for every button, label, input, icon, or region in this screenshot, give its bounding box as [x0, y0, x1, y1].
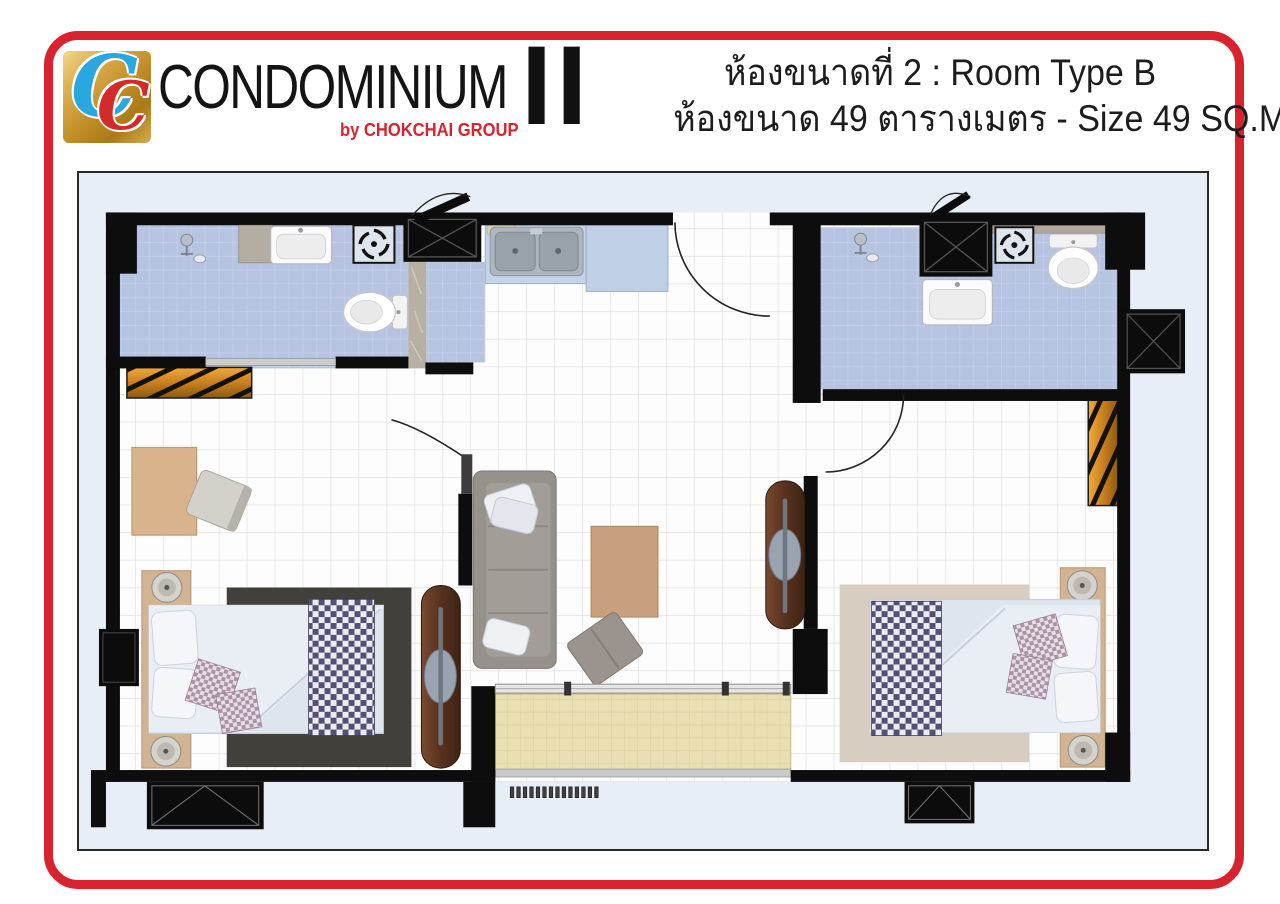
sofa: [473, 471, 556, 668]
balcony: [495, 694, 790, 777]
brand-byline: by CHOKCHAI GROUP: [340, 120, 506, 141]
logo-c-red: C: [97, 67, 150, 145]
vanity-counter-left: [239, 225, 273, 263]
bedside-lamp: [151, 736, 181, 766]
desk: [132, 447, 197, 535]
ac-ledge: [1122, 309, 1185, 373]
bathroom-right-door-leaf: [823, 389, 903, 401]
wall-bottom-left: [106, 770, 495, 782]
sliding-door-panel-right: [766, 481, 805, 629]
wall-bath-left-b: [336, 357, 409, 369]
ventilation-fan-right: [995, 227, 1033, 263]
wardrobe-left: [127, 367, 252, 398]
bedside-lamp: [1068, 736, 1098, 766]
bedroom-right: [840, 568, 1106, 767]
wall-bottom-right: [791, 770, 1130, 782]
brand-name: CONDOMINIUM: [158, 52, 507, 123]
wall-divider-right-bedroom: [804, 476, 818, 629]
bed-right: [870, 599, 1101, 735]
pillow: [1054, 671, 1099, 723]
pillow: [151, 610, 199, 666]
bed-runner-checkered: [872, 601, 942, 735]
shaft-right: [920, 217, 993, 276]
wall-right: [1117, 212, 1130, 781]
wall-block-foyer: [793, 629, 828, 694]
shaft-left: [403, 214, 481, 261]
bedroom-left-door-leaf: [461, 454, 472, 493]
title-line-2: ห้องขนาด 49 ตารางเมตร - Size 49 SQ.M.: [673, 96, 1207, 142]
window-box-bottom-right: [905, 782, 975, 823]
brand-numeral-II: II: [521, 30, 591, 142]
sliding-door-panel-left: [421, 586, 460, 769]
title-line-1: ห้องขนาดที่ 2 : Room Type B: [673, 50, 1207, 96]
window-box-bottom-left: [147, 782, 264, 829]
toilet-right: [1048, 234, 1098, 288]
floor-plan-panel: [77, 171, 1209, 851]
wall-left: [106, 212, 120, 781]
page: C C CONDOMINIUM by CHOKCHAI GROUP II ห้อ…: [0, 0, 1280, 904]
toilet-left: [344, 292, 408, 331]
bedside-lamp: [152, 573, 182, 603]
ventilation-fan-left: [354, 225, 395, 263]
threshold-bath-left: [206, 359, 336, 366]
wall-mid: [425, 362, 473, 374]
wall-top-left: [106, 212, 673, 225]
balcony-railing: [495, 769, 790, 777]
wall-stub-bottom-left: [91, 770, 106, 827]
kitchen-sink: [490, 227, 583, 275]
wall-bath-right-bottom: [903, 389, 1126, 401]
wall-bath-right-left: [793, 215, 821, 403]
page-title: ห้องขนาดที่ 2 : Room Type B ห้องขนาด 49 …: [650, 50, 1230, 142]
wall-balcony-stub: [463, 782, 495, 827]
wash-basin-right: [923, 280, 993, 325]
bed-left: [149, 599, 384, 735]
bedside-lamp: [1067, 571, 1097, 601]
cc-logo: C C: [63, 51, 151, 143]
wall-column-top-left: [106, 212, 137, 273]
cushion: [216, 688, 262, 734]
window-box-left-wall: [99, 629, 139, 686]
wash-basin-left: [271, 226, 332, 264]
kitchen-counter: [485, 220, 668, 291]
floor-plan: [79, 173, 1207, 849]
kitchen-wet-floor: [426, 262, 485, 363]
wall-bath-left-a: [106, 357, 206, 369]
bed-runner-checkered: [309, 599, 375, 735]
coffee-table: [591, 526, 658, 617]
wall-balcony-column: [471, 686, 495, 782]
cushion: [1006, 653, 1052, 699]
wall-divider-left-bedroom: [458, 494, 472, 586]
wardrobe-right: [1088, 399, 1118, 506]
